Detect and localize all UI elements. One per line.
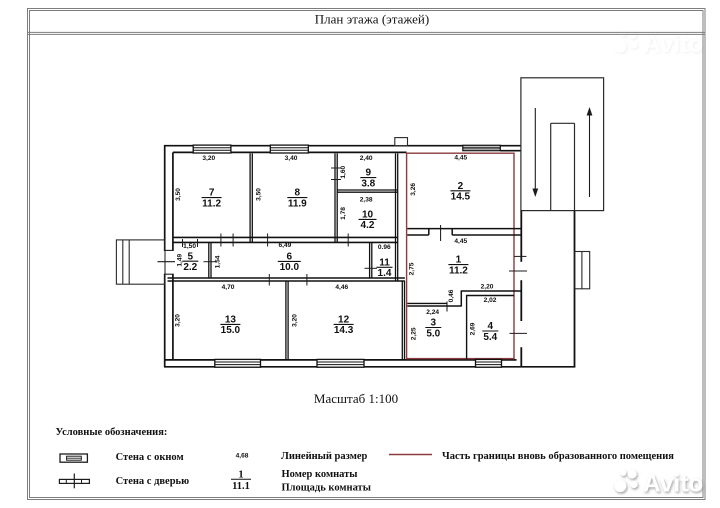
- svg-text:Номер комнаты: Номер комнаты: [282, 469, 358, 480]
- svg-text:5: 5: [188, 251, 194, 262]
- svg-text:3,40: 3,40: [285, 155, 298, 162]
- svg-text:Стена с дверью: Стена с дверью: [116, 476, 190, 487]
- svg-text:3,20: 3,20: [292, 314, 299, 327]
- svg-text:4,45: 4,45: [454, 154, 467, 161]
- svg-text:3,26: 3,26: [410, 183, 417, 196]
- svg-text:3.8: 3.8: [361, 178, 375, 189]
- svg-text:Avito: Avito: [643, 471, 703, 498]
- svg-text:Условные обозначения:: Условные обозначения:: [56, 427, 168, 438]
- svg-text:3,50: 3,50: [175, 188, 182, 201]
- svg-text:Масштаб 1:100: Масштаб 1:100: [314, 391, 398, 406]
- svg-text:2,25: 2,25: [410, 327, 417, 340]
- svg-text:14.3: 14.3: [334, 325, 354, 336]
- svg-text:1,60: 1,60: [340, 165, 347, 178]
- svg-text:1,54: 1,54: [215, 255, 222, 268]
- svg-text:4.2: 4.2: [361, 220, 375, 231]
- svg-text:Avito: Avito: [643, 31, 703, 58]
- svg-text:Часть границы вновь образованн: Часть границы вновь образованного помеще…: [442, 451, 674, 462]
- svg-text:2,38: 2,38: [360, 196, 373, 203]
- svg-text:Стена с окном: Стена с окном: [116, 452, 184, 463]
- svg-text:Площадь комнаты: Площадь комнаты: [282, 483, 371, 494]
- svg-text:2,69: 2,69: [469, 322, 476, 335]
- svg-text:11.2: 11.2: [202, 198, 221, 209]
- svg-text:0,46: 0,46: [448, 289, 455, 302]
- svg-text:10.0: 10.0: [280, 262, 300, 273]
- svg-text:2,24: 2,24: [426, 309, 439, 316]
- svg-text:Линейный размер: Линейный размер: [281, 451, 368, 462]
- svg-text:6,49: 6,49: [278, 242, 291, 249]
- svg-text:11.1: 11.1: [232, 481, 250, 492]
- svg-text:3,20: 3,20: [202, 155, 215, 162]
- svg-text:2,40: 2,40: [360, 155, 373, 162]
- svg-text:3,20: 3,20: [174, 314, 181, 327]
- svg-text:3,50: 3,50: [255, 188, 262, 201]
- svg-text:План этажа (этажей): План этажа (этажей): [315, 12, 429, 27]
- svg-text:5.0: 5.0: [426, 328, 440, 339]
- svg-text:2,20: 2,20: [481, 283, 494, 290]
- svg-text:1.4: 1.4: [378, 268, 392, 279]
- svg-text:11.9: 11.9: [288, 198, 307, 209]
- svg-text:14.5: 14.5: [451, 192, 471, 203]
- svg-text:2,02: 2,02: [484, 297, 497, 304]
- svg-text:4,45: 4,45: [454, 238, 467, 245]
- svg-text:15.0: 15.0: [221, 325, 241, 336]
- svg-text:2.2: 2.2: [183, 262, 197, 273]
- svg-text:1,78: 1,78: [340, 207, 347, 220]
- svg-text:1,50: 1,50: [183, 243, 196, 250]
- svg-text:4,70: 4,70: [222, 284, 235, 291]
- svg-text:4,68: 4,68: [236, 452, 249, 459]
- svg-text:4,46: 4,46: [335, 284, 348, 291]
- svg-text:1,49: 1,49: [177, 253, 184, 266]
- svg-text:2,75: 2,75: [408, 262, 415, 275]
- svg-text:11.2: 11.2: [449, 265, 468, 276]
- svg-text:5.4: 5.4: [483, 332, 497, 343]
- svg-text:0.96: 0.96: [378, 244, 391, 251]
